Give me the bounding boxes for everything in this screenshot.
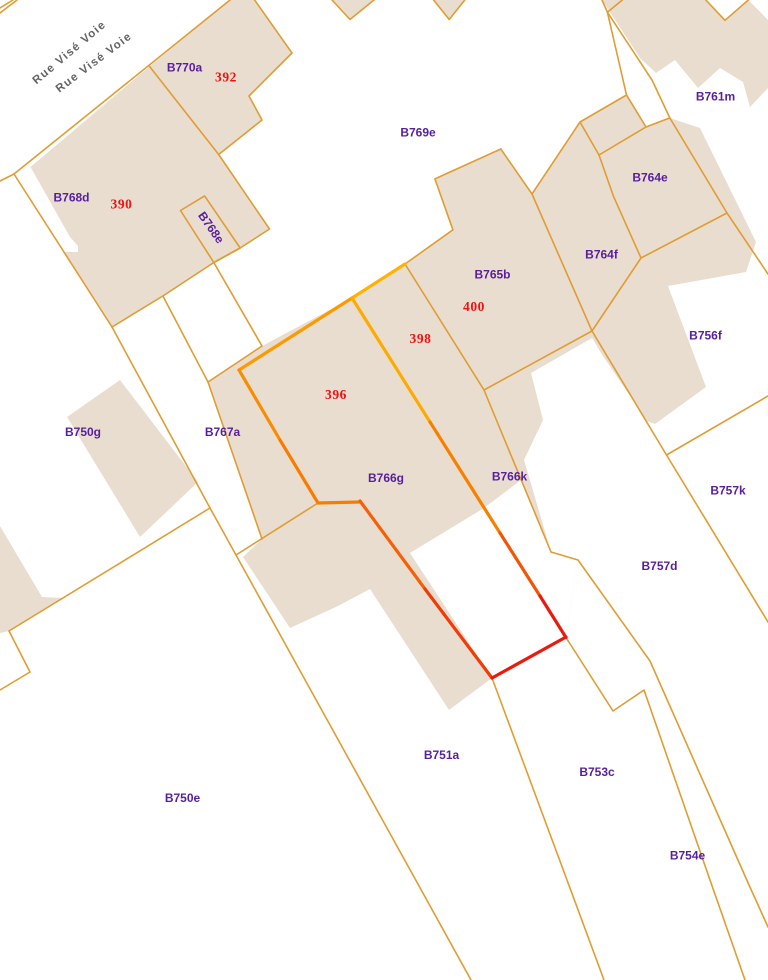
svg-text:B767a: B767a [205,425,241,439]
svg-text:400: 400 [463,299,485,314]
svg-text:396: 396 [325,387,347,402]
svg-text:B757k: B757k [710,484,746,498]
svg-text:B761m: B761m [696,90,735,104]
svg-text:B769e: B769e [400,126,436,140]
svg-text:B764f: B764f [585,248,619,262]
svg-text:B770a: B770a [167,61,203,75]
svg-text:B768d: B768d [53,191,89,205]
svg-text:390: 390 [110,197,132,212]
svg-text:392: 392 [215,70,237,85]
svg-text:B756f: B756f [689,329,723,343]
svg-text:B766g: B766g [368,471,404,485]
svg-text:B753c: B753c [579,765,615,779]
svg-text:B765b: B765b [474,268,510,282]
svg-text:B764e: B764e [632,171,668,185]
svg-text:B754e: B754e [670,849,706,863]
svg-text:B757d: B757d [641,559,677,573]
svg-text:398: 398 [409,331,431,346]
svg-text:B750g: B750g [65,425,101,439]
svg-text:B766k: B766k [492,470,528,484]
svg-text:B750e: B750e [165,791,201,805]
svg-text:B751a: B751a [424,748,460,762]
